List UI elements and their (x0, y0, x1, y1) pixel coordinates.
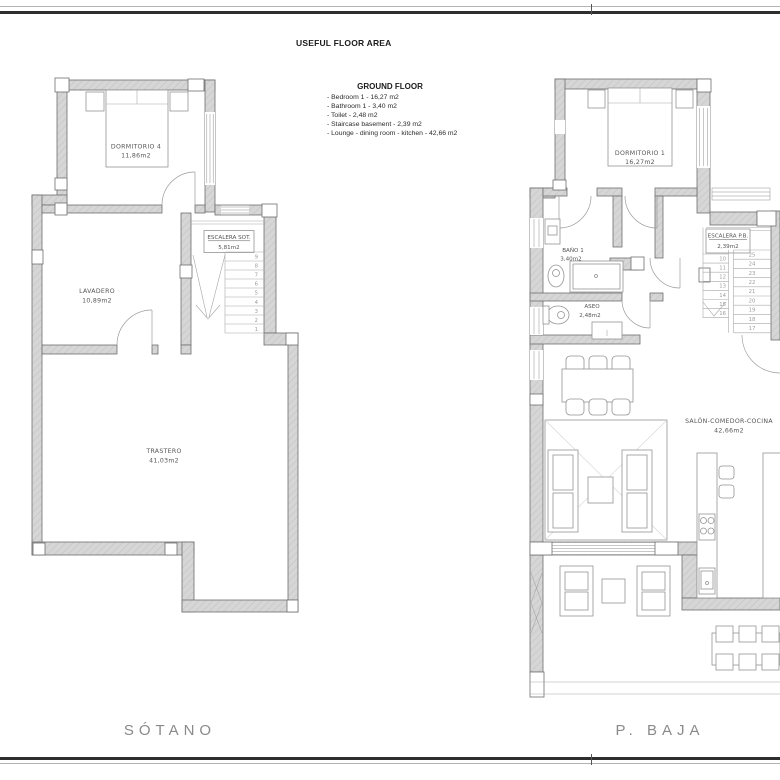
outdoor-chair (762, 626, 779, 642)
room-label-trastero: TRASTERO (145, 448, 181, 455)
coffee-table (588, 477, 613, 503)
stair-step-number: 8 (255, 264, 259, 270)
floor-plan-sheet: USEFUL FLOOR AREA GROUND FLOOR - Bedroom… (0, 0, 780, 780)
stair-step-number: 10 (719, 256, 726, 262)
stair-step-number: 12 (719, 275, 726, 281)
room-area-aseo: 2,48m2 (579, 313, 600, 319)
stair-direction-arrow (196, 305, 220, 319)
room-label-lavadero: LAVADERO (79, 288, 115, 295)
room-label-bano1: BAÑO 1 (562, 247, 584, 254)
stair-step-number: 18 (749, 317, 756, 323)
stool (719, 485, 734, 498)
outdoor-chair (739, 654, 756, 670)
nightstand (588, 90, 605, 108)
dining-table (562, 369, 633, 402)
kitchen-island (697, 453, 717, 598)
pbaja-dining-set (562, 356, 633, 415)
toilet (547, 306, 569, 324)
room-area-escalera-sot: 5,81m2 (218, 245, 239, 251)
stair-step-number: 15 (719, 302, 726, 308)
outdoor-chair (762, 654, 779, 670)
stair-step-number: 25 (749, 252, 756, 258)
room-label-dormitorio1: DORMITORIO 1 (615, 150, 665, 157)
room-area-lavadero: 10,89m2 (82, 298, 112, 305)
stair-step-number: 20 (749, 298, 756, 304)
room-label-aseo: ASEO (584, 304, 600, 310)
plan-pbaja: 10 11 12 13 14 15 16 25 24 23 22 21 20 1… (530, 79, 780, 697)
sink (545, 219, 560, 244)
stair-step-number: 23 (749, 271, 756, 277)
caption-pbaja: P. BAJA (580, 722, 740, 739)
side-table (602, 579, 625, 603)
outdoor-chair (716, 654, 733, 670)
kitchen-counter (763, 453, 780, 598)
stair-step-number: 13 (719, 284, 726, 290)
nightstand (86, 92, 104, 111)
plans-drawing: 9 8 7 6 5 4 3 2 1 DORMITORIO 4 11,86m2 L… (0, 0, 780, 780)
stair-step-number: 22 (749, 280, 756, 286)
room-area-salon: 42,66m2 (714, 428, 744, 435)
stair-step-number: 1 (255, 327, 258, 333)
shower-tray (570, 261, 623, 292)
stair-step-number: 6 (255, 282, 259, 288)
stool (719, 466, 734, 479)
room-label-dormitorio4: DORMITORIO 4 (111, 144, 161, 151)
stair-step-number: 5 (255, 291, 258, 297)
pbaja-bathroom-fixtures (543, 219, 623, 339)
outdoor-chair (739, 626, 756, 642)
stair-step-number: 2 (255, 318, 258, 324)
room-area-dormitorio4: 11,86m2 (121, 153, 151, 160)
outdoor-chair (716, 626, 733, 642)
nightstand (170, 92, 188, 111)
room-label-salon: SALÓN-COMEDOR-COCINA (685, 416, 773, 425)
stair-step-number: 21 (749, 289, 756, 295)
caption-sotano: SÓTANO (95, 722, 245, 739)
room-area-escalera-pb: 2,39m2 (717, 244, 738, 250)
stair-step-number: 3 (255, 309, 258, 315)
stair-step-number: 4 (255, 300, 259, 306)
plan-sotano: 9 8 7 6 5 4 3 2 1 DORMITORIO 4 11,86m2 L… (32, 78, 298, 612)
stair-step-number: 9 (255, 255, 258, 261)
toilet (548, 265, 564, 287)
stair-step-number: 19 (749, 308, 756, 314)
stair-step-number: 16 (719, 311, 726, 317)
stair-step-number: 11 (719, 266, 726, 272)
room-area-bano1: 3,40m2 (560, 257, 581, 263)
sofa (622, 450, 652, 532)
stair-step-number: 17 (749, 326, 756, 332)
room-label-escalera-sot: ESCALERA SOT. (207, 235, 250, 241)
pbaja-kitchen (697, 453, 780, 598)
stair-step-number: 7 (255, 273, 258, 279)
room-label-escalera-pb: ESCALERA P.B. (708, 234, 749, 240)
pbaja-terrace (530, 566, 780, 694)
nightstand (676, 90, 693, 108)
room-area-dormitorio1: 16,27m2 (625, 159, 655, 166)
room-area-trastero: 41,03m2 (149, 458, 179, 465)
stair-step-number: 24 (749, 262, 756, 268)
stair-step-number: 14 (719, 293, 726, 299)
pbaja-lounge (545, 420, 667, 540)
sofa (548, 450, 578, 532)
